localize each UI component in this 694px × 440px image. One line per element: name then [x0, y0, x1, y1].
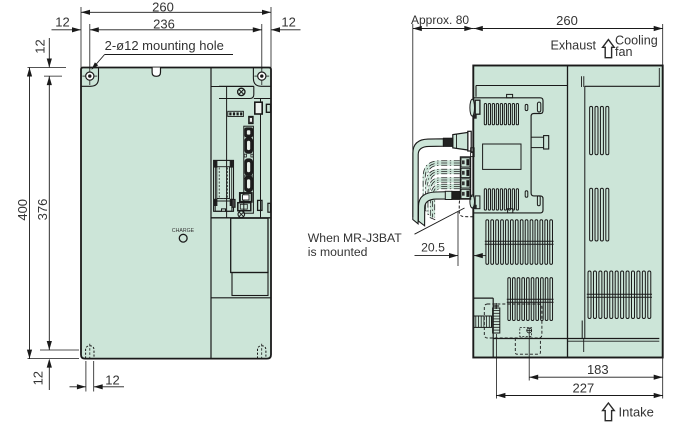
svg-text:12: 12	[281, 15, 295, 30]
svg-text:CHARGE: CHARGE	[172, 228, 195, 234]
svg-text:12: 12	[32, 39, 47, 53]
svg-text:12: 12	[105, 373, 119, 388]
svg-text:is mounted: is mounted	[308, 245, 368, 259]
svg-text:260: 260	[152, 0, 174, 15]
svg-text:227: 227	[573, 381, 595, 396]
svg-text:Exhaust: Exhaust	[550, 39, 596, 53]
svg-text:12: 12	[31, 371, 46, 385]
svg-text:236: 236	[153, 17, 175, 32]
svg-text:20.5: 20.5	[421, 240, 445, 254]
svg-text:fan: fan	[615, 45, 633, 59]
svg-text:When MR-J3BAT: When MR-J3BAT	[308, 231, 402, 245]
svg-text:2-ø12 mounting hole: 2-ø12 mounting hole	[105, 38, 224, 53]
svg-text:400: 400	[15, 199, 30, 221]
svg-text:183: 183	[587, 362, 609, 377]
svg-text:Approx. 80: Approx. 80	[411, 13, 469, 27]
svg-text:Intake: Intake	[619, 405, 654, 420]
svg-text:376: 376	[35, 199, 50, 221]
svg-text:12: 12	[55, 15, 69, 30]
svg-text:260: 260	[556, 13, 578, 28]
